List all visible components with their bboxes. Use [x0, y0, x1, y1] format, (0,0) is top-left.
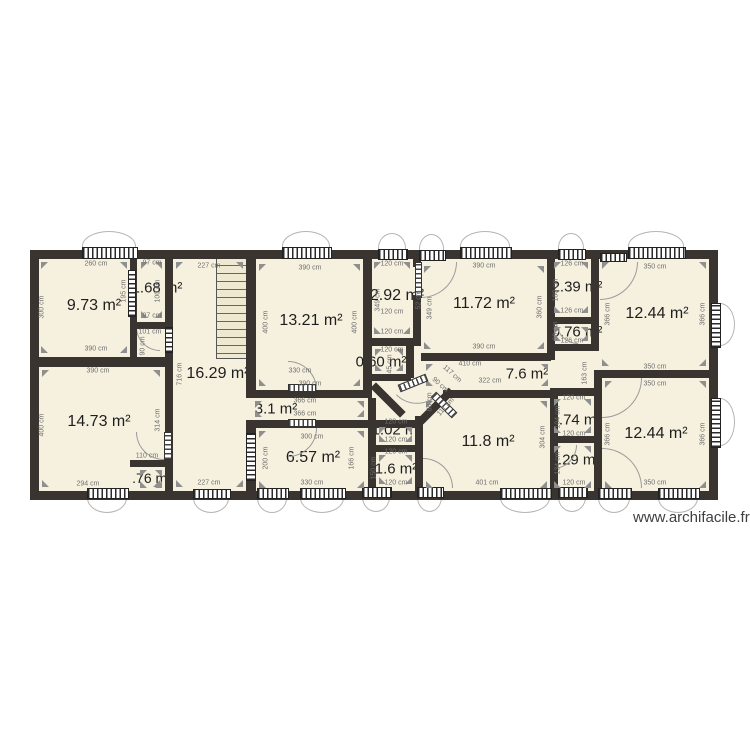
shutter-arc-icon: [460, 231, 512, 247]
room-area-label: 16.29 m²: [186, 365, 249, 383]
shutter-arc-icon: [558, 498, 588, 514]
dimension-label: 60 cm: [553, 321, 560, 340]
dimension-arrow-icon: [540, 481, 547, 488]
dimension-label: 120 cm: [381, 309, 404, 316]
dimension-label: 294 cm: [77, 481, 100, 488]
dimension-arrow-icon: [379, 427, 386, 434]
dimension-arrow-icon: [584, 446, 591, 453]
dimension-arrow-icon: [353, 264, 360, 271]
shutter-arc-icon: [598, 499, 632, 515]
wall: [709, 250, 718, 500]
dimension-arrow-icon: [375, 364, 382, 371]
shutter-arc-icon: [87, 499, 129, 515]
window-icon: [500, 488, 552, 499]
dimension-arrow-icon: [699, 481, 706, 488]
window-icon: [246, 433, 256, 481]
room-area-label: 1.6 m²: [375, 461, 418, 478]
dimension-label: 88 cm: [427, 392, 434, 411]
wall: [443, 390, 552, 398]
dimension-label: 120 cm: [563, 395, 586, 402]
dimension-label: 304 cm: [540, 426, 547, 449]
dimension-label: 390 cm: [473, 344, 496, 351]
dimension-arrow-icon: [581, 327, 588, 334]
dimension-label: 120 cm: [381, 329, 404, 336]
window-icon: [711, 398, 721, 448]
dimension-arrow-icon: [236, 262, 243, 269]
dimension-arrow-icon: [541, 364, 548, 371]
window-icon: [628, 247, 686, 259]
dimension-label: 52 cm: [416, 290, 423, 309]
dimension-arrow-icon: [426, 481, 433, 488]
shutter-arc-icon: [417, 498, 444, 514]
wall: [246, 255, 256, 398]
dimension-label: 45 cm: [387, 354, 394, 373]
dimension-arrow-icon: [405, 455, 412, 462]
floor-plan: 9.73 m²1.68 m²16.29 m²13.21 m²2.92 m²11.…: [0, 0, 750, 750]
dimension-arrow-icon: [42, 480, 49, 487]
dimension-label: 400 cm: [39, 414, 46, 437]
dimension-label: 390 cm: [87, 368, 110, 375]
dimension-label: 126 cm: [561, 338, 584, 345]
dimension-label: 360 cm: [537, 296, 544, 319]
window-icon: [362, 487, 392, 498]
dimension-arrow-icon: [155, 470, 162, 477]
dimension-label: 716 cm: [177, 363, 184, 386]
dimension-label: 90 cm: [140, 336, 147, 355]
window-icon: [460, 247, 512, 259]
wall: [598, 370, 709, 378]
door-leaf-icon: [288, 419, 316, 427]
dimension-label: 120 cm: [385, 437, 408, 444]
dimension-arrow-icon: [176, 480, 183, 487]
shutter-arc-icon: [721, 303, 737, 348]
window-icon: [558, 487, 588, 498]
dimension-arrow-icon: [357, 481, 364, 488]
shutter-arc-icon: [378, 233, 408, 249]
shutter-arc-icon: [82, 231, 138, 247]
dimension-arrow-icon: [255, 401, 262, 408]
watermark: www.archifacile.fr: [633, 509, 750, 526]
dimension-arrow-icon: [259, 379, 266, 386]
dimension-arrow-icon: [605, 481, 612, 488]
room-area-label: 12.44 m²: [624, 425, 687, 443]
room-area-label: 9.73 m²: [67, 297, 121, 315]
dimension-arrow-icon: [424, 266, 431, 273]
dimension-arrow-icon: [140, 481, 147, 488]
dimension-arrow-icon: [605, 381, 612, 388]
room-area-label: 12.44 m²: [625, 305, 688, 323]
dimension-arrow-icon: [602, 359, 609, 366]
dimension-arrow-icon: [259, 431, 266, 438]
dimension-label: 366 cm: [294, 411, 317, 418]
dimension-label: 314 cm: [155, 409, 162, 432]
dimension-label: 366 cm: [700, 303, 707, 326]
dimension-arrow-icon: [379, 455, 386, 462]
shutter-arc-icon: [558, 233, 586, 249]
dimension-arrow-icon: [259, 481, 266, 488]
dimension-label: 180 cm: [553, 279, 560, 302]
dimension-arrow-icon: [699, 262, 706, 269]
wall: [30, 250, 39, 500]
dimension-arrow-icon: [602, 262, 609, 269]
shutter-arc-icon: [300, 499, 346, 515]
shutter-arc-icon: [500, 499, 552, 515]
window-icon: [598, 488, 632, 499]
dimension-arrow-icon: [42, 370, 49, 377]
dimension-arrow-icon: [403, 327, 410, 334]
dimension-label: 400 cm: [352, 311, 359, 334]
room-area-label: 13.21 m²: [279, 312, 342, 330]
shutter-arc-icon: [362, 498, 392, 514]
dimension-arrow-icon: [537, 266, 544, 273]
window-icon: [257, 488, 289, 499]
dimension-arrow-icon: [424, 342, 431, 349]
dimension-arrow-icon: [541, 379, 548, 386]
wall: [371, 338, 421, 346]
shutter-arc-icon: [282, 231, 332, 247]
dimension-arrow-icon: [255, 410, 262, 417]
dimension-label: 300 cm: [39, 296, 46, 319]
dimension-arrow-icon: [405, 427, 412, 434]
dimension-label: 104 cm: [555, 406, 562, 429]
window-icon: [378, 249, 408, 260]
dimension-label: 120 cm: [563, 431, 586, 438]
wall: [165, 353, 173, 491]
wall: [551, 344, 599, 351]
dimension-arrow-icon: [396, 364, 403, 371]
dimension-label: 120 cm: [381, 347, 404, 354]
dimension-label: 260 cm: [85, 261, 108, 268]
window-icon: [658, 488, 700, 499]
dimension-label: 100 cm: [155, 280, 162, 303]
dimension-label: 110 cm: [136, 453, 158, 460]
shutter-arc-icon: [628, 231, 686, 247]
dimension-arrow-icon: [140, 470, 147, 477]
dimension-arrow-icon: [537, 342, 544, 349]
dimension-arrow-icon: [357, 431, 364, 438]
shutter-arc-icon: [419, 234, 446, 250]
shutter-arc-icon: [721, 398, 737, 448]
dimension-label: 227 cm: [198, 263, 221, 270]
dimension-label: 401 cm: [476, 480, 499, 487]
dimension-label: 97 cm: [142, 313, 161, 320]
dimension-arrow-icon: [259, 264, 266, 271]
dimension-label: 350 cm: [644, 364, 667, 371]
dimension-arrow-icon: [403, 262, 410, 269]
dimension-label: 366 cm: [605, 303, 612, 326]
dimension-label: 330 cm: [301, 480, 324, 487]
dimension-label: 330 cm: [289, 368, 312, 375]
dimension-label: 366 cm: [605, 423, 612, 446]
dimension-label: 410 cm: [459, 361, 482, 368]
window-icon: [419, 250, 446, 261]
wall: [591, 255, 599, 351]
dimension-label: 97 cm: [142, 260, 161, 267]
wall: [165, 255, 173, 327]
window-icon: [282, 247, 332, 259]
dimension-arrow-icon: [699, 359, 706, 366]
dimension-label: 390 cm: [473, 263, 496, 270]
wall: [415, 420, 423, 491]
window-icon: [193, 489, 231, 499]
room-area-label: 14.73 m²: [67, 413, 130, 431]
dimension-label: 134 cm: [555, 452, 562, 475]
door-leaf-icon: [164, 432, 172, 460]
dimension-arrow-icon: [540, 401, 547, 408]
dimension-arrow-icon: [41, 262, 48, 269]
shutter-arc-icon: [257, 499, 289, 515]
wall: [130, 460, 173, 467]
dimension-label: 120 cm: [385, 449, 408, 456]
dimension-label: 350 cm: [644, 381, 667, 388]
dimension-arrow-icon: [41, 346, 48, 353]
window-icon: [300, 488, 346, 499]
dimension-label: 350 cm: [644, 264, 667, 271]
dimension-label: 126 cm: [561, 261, 584, 268]
dimension-label: 227 cm: [198, 480, 221, 487]
dimension-label: 300 cm: [301, 434, 324, 441]
dimension-label: 322 cm: [479, 378, 502, 385]
dimension-arrow-icon: [554, 481, 561, 488]
dimension-arrow-icon: [357, 401, 364, 408]
dimension-arrow-icon: [699, 381, 706, 388]
dimension-label: 166 cm: [349, 447, 356, 470]
dimension-label: 120 cm: [563, 480, 586, 487]
dimension-label: 390 cm: [85, 346, 108, 353]
dimension-label: 120 cm: [381, 261, 404, 268]
dimension-label: 200 cm: [263, 447, 270, 470]
shutter-arc-icon: [193, 499, 231, 515]
wall: [371, 374, 411, 381]
dimension-arrow-icon: [426, 364, 433, 371]
window-icon: [600, 253, 627, 262]
dimension-arrow-icon: [120, 262, 127, 269]
window-icon: [558, 249, 586, 260]
dimension-label: 390 cm: [299, 381, 322, 388]
window-icon: [417, 487, 444, 498]
dimension-label: 126 cm: [561, 308, 584, 315]
dimension-label: 350 cm: [644, 480, 667, 487]
dimension-arrow-icon: [357, 410, 364, 417]
dimension-arrow-icon: [153, 370, 160, 377]
window-icon: [87, 488, 129, 499]
window-icon: [128, 270, 136, 317]
dimension-arrow-icon: [236, 480, 243, 487]
window-icon: [165, 327, 173, 353]
dimension-label: 366 cm: [700, 423, 707, 446]
dimension-label: 150 cm: [371, 457, 378, 480]
wall: [421, 353, 551, 361]
window-icon: [82, 247, 138, 259]
dimension-label: 390 cm: [299, 265, 322, 272]
window-icon: [711, 303, 721, 348]
room-area-label: 11.8 m²: [461, 433, 514, 451]
dimension-arrow-icon: [353, 379, 360, 386]
dimension-arrow-icon: [120, 346, 127, 353]
room-area-label: 11.72 m²: [453, 295, 515, 313]
dimension-label: 120 cm: [385, 480, 408, 487]
floor-plan-canvas: 9.73 m²1.68 m²16.29 m²13.21 m²2.92 m²11.…: [0, 0, 750, 750]
dimension-label: 366 cm: [294, 398, 317, 405]
dimension-label: 349 cm: [427, 297, 434, 320]
staircase: [216, 257, 250, 359]
dimension-arrow-icon: [176, 262, 183, 269]
dimension-arrow-icon: [155, 481, 162, 488]
wall: [30, 357, 173, 367]
dimension-label: 400 cm: [263, 311, 270, 334]
dimension-label: 101 cm: [139, 329, 162, 336]
dimension-label: 195 cm: [121, 280, 128, 303]
dimension-label: 120 cm: [385, 419, 408, 426]
dimension-label: 163 cm: [582, 362, 589, 385]
